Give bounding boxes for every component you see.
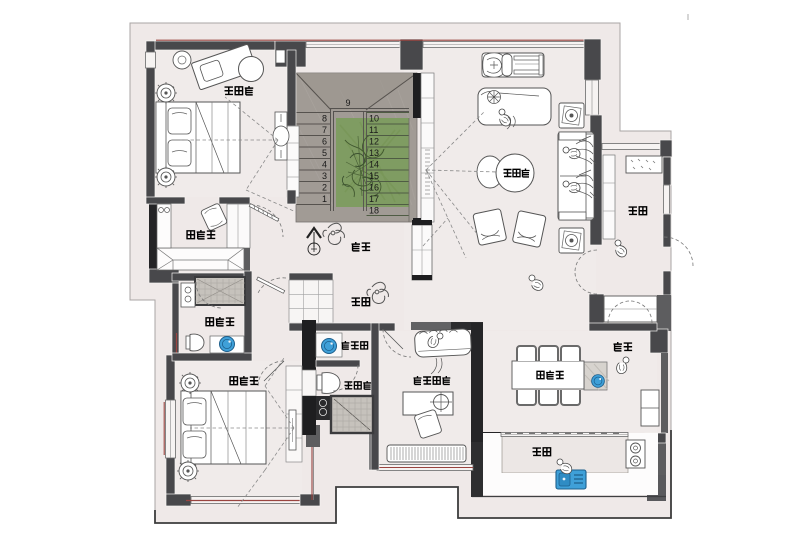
svg-text:8: 8 [322,114,327,124]
svg-text:16: 16 [369,183,379,193]
svg-text:3: 3 [322,171,327,181]
svg-text:5: 5 [322,148,327,158]
svg-text:6: 6 [322,137,327,147]
svg-text:17: 17 [369,194,379,204]
svg-text:1: 1 [322,194,327,204]
svg-text:12: 12 [369,137,379,147]
svg-text:7: 7 [322,125,327,135]
svg-text:4: 4 [322,160,327,170]
svg-text:10: 10 [369,114,379,124]
svg-text:11: 11 [369,125,378,135]
svg-text:9: 9 [345,98,350,108]
svg-text:15: 15 [369,171,379,181]
svg-text:2: 2 [322,183,327,193]
svg-text:14: 14 [369,160,379,170]
svg-text:18: 18 [369,206,379,216]
svg-text:13: 13 [369,148,379,158]
